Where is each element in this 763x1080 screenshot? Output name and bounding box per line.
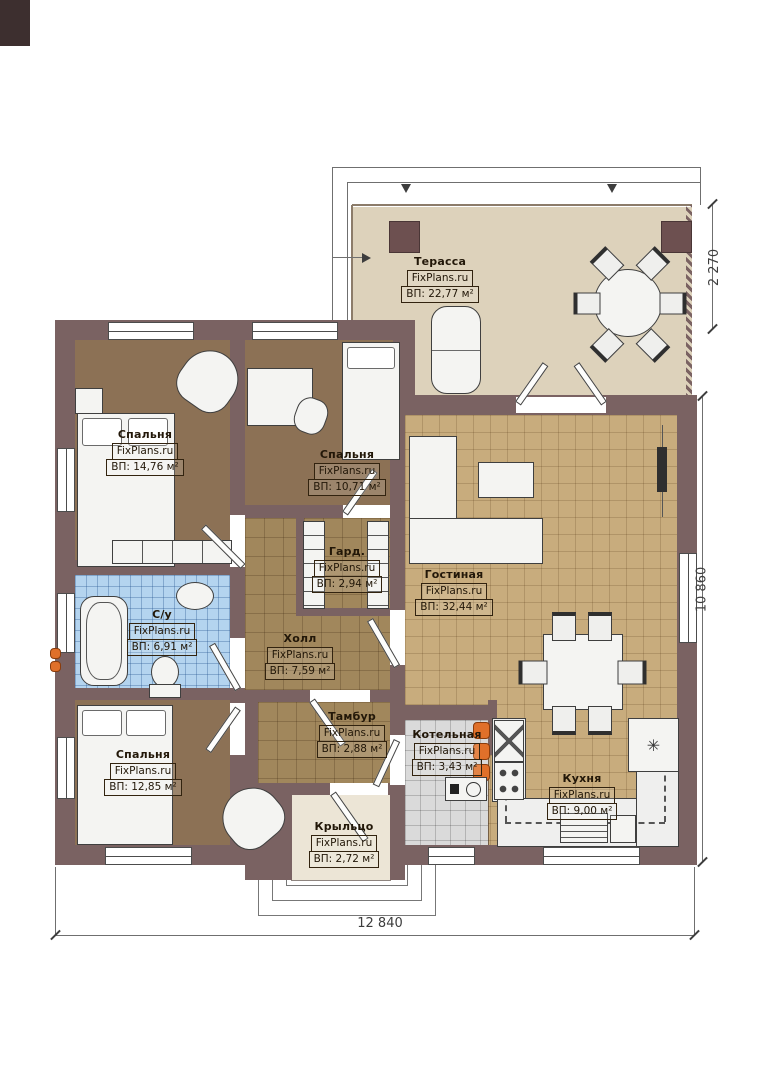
- window-bathroom-left: [57, 593, 75, 653]
- window-bedroom2-top: [252, 322, 338, 340]
- terrace-column: [661, 221, 692, 253]
- dim-label-terrace-depth: 2 270: [685, 260, 745, 275]
- wall-bedrooms-divider: [230, 320, 245, 845]
- dining-chair: [618, 661, 647, 685]
- window-bedroom1-top: [108, 322, 194, 340]
- terrace-chair: [660, 293, 687, 315]
- room-area: ВП: 22,77 м²: [401, 286, 479, 303]
- room-name: Спальня: [95, 428, 195, 441]
- dim-arrow-down: [401, 184, 411, 193]
- dim-line-house-width: [55, 935, 695, 936]
- coffee-table: [478, 462, 534, 498]
- dim-value: 2 270: [708, 249, 723, 286]
- fridge-icon: ✳: [647, 736, 660, 755]
- dim-label-house-depth: 10 860: [672, 582, 732, 597]
- dim-line-terrace-ptr: [332, 257, 364, 258]
- towel-radiator: [50, 661, 61, 672]
- room-label-bathroom: С/у FixPlans.ru ВП: 6,91 м²: [112, 608, 212, 656]
- room-label-hall: Холл FixPlans.ru ВП: 7,59 м²: [250, 632, 350, 680]
- terrace-column: [389, 221, 420, 253]
- brand-watermark: FixPlans.ru: [314, 560, 381, 577]
- page-corner-marker: [0, 0, 30, 46]
- bed-bedroom2: [342, 342, 400, 460]
- wardrobe-bedroom1: [112, 540, 232, 564]
- room-name: Гостиная: [404, 568, 504, 581]
- bathroom-sink: [176, 582, 214, 610]
- stove: [494, 762, 524, 800]
- brand-watermark: FixPlans.ru: [407, 270, 474, 287]
- washing-machine: [445, 777, 487, 801]
- dim-ext-bottom-right: [694, 867, 695, 935]
- window-kitchen-bottom: [543, 847, 640, 865]
- door-opening-terrace: [516, 397, 606, 413]
- terrace-edge-left: [351, 205, 353, 322]
- dim-line-top-1: [332, 167, 701, 168]
- brand-watermark: FixPlans.ru: [129, 623, 196, 640]
- room-area: ВП: 12,85 м²: [104, 779, 182, 796]
- terrace-chair: [574, 293, 601, 315]
- room-name: Гард.: [297, 545, 397, 558]
- tv: [657, 447, 667, 492]
- brand-watermark: FixPlans.ru: [549, 787, 616, 804]
- door-opening-hall-vestibule: [310, 690, 370, 702]
- room-area: ВП: 10,71 м²: [308, 479, 386, 496]
- floor-plan: ✳ Терасса FixPlans.ru ВП: 22,77 м² Спаль…: [0, 0, 763, 1080]
- terrace-edge-top: [352, 204, 692, 206]
- brand-watermark: FixPlans.ru: [311, 835, 378, 852]
- wall-boiler-top: [405, 705, 490, 720]
- room-area: ВП: 9,00 м²: [547, 803, 618, 820]
- dim-line-top-2: [347, 182, 700, 183]
- room-label-porch: Крыльцо FixPlans.ru ВП: 2,72 м²: [294, 820, 394, 868]
- room-name: Котельная: [397, 728, 497, 741]
- room-name: Тамбур: [302, 710, 402, 723]
- room-name: Спальня: [297, 448, 397, 461]
- room-name: Кухня: [532, 772, 632, 785]
- room-name: С/у: [112, 608, 212, 621]
- toilet-tank: [149, 684, 181, 698]
- dim-line-house-depth: [702, 397, 703, 863]
- room-name: Спальня: [93, 748, 193, 761]
- dim-label-house-width: 12 840: [330, 916, 430, 931]
- room-area: ВП: 2,88 м²: [317, 741, 388, 758]
- room-label-vestibule: Тамбур FixPlans.ru ВП: 2,88 м²: [302, 710, 402, 758]
- wall-vestibule-left: [245, 690, 258, 783]
- dining-chair: [588, 612, 612, 641]
- window-bedroom3-left: [57, 737, 75, 799]
- dining-table: [543, 634, 623, 710]
- brand-watermark: FixPlans.ru: [110, 763, 177, 780]
- room-label-bedroom3: Спальня FixPlans.ru ВП: 12,85 м²: [93, 748, 193, 796]
- room-area: ВП: 3,43 м²: [412, 759, 483, 776]
- kitchen-sink: [494, 720, 524, 762]
- room-area: ВП: 32,44 м²: [415, 599, 493, 616]
- sofa-horizontal: [409, 518, 543, 564]
- terrace-sofa: [431, 306, 481, 394]
- dim-arrow-down: [607, 184, 617, 193]
- wall-bath-bedroom3: [55, 688, 230, 700]
- room-label-wardrobe: Гард. FixPlans.ru ВП: 2,94 м²: [297, 545, 397, 593]
- dining-chair: [519, 661, 548, 685]
- room-area: ВП: 14,76 м²: [106, 459, 184, 476]
- nightstand-bedroom1: [75, 388, 103, 414]
- window-bedroom1-left: [57, 448, 75, 512]
- room-label-terrace: Терасса FixPlans.ru ВП: 22,77 м²: [388, 255, 492, 303]
- room-label-bedroom1: Спальня FixPlans.ru ВП: 14,76 м²: [95, 428, 195, 476]
- dim-ext-top-left-1: [332, 167, 333, 320]
- room-label-boiler: Котельная FixPlans.ru ВП: 3,43 м²: [397, 728, 497, 776]
- dim-arrow-right: [362, 253, 371, 263]
- brand-watermark: FixPlans.ru: [267, 647, 334, 664]
- room-name: Крыльцо: [294, 820, 394, 833]
- dim-ext-top-right: [700, 167, 701, 205]
- brand-watermark: FixPlans.ru: [112, 443, 179, 460]
- brand-watermark: FixPlans.ru: [314, 463, 381, 480]
- room-name: Терасса: [388, 255, 492, 268]
- dining-chair: [552, 706, 576, 735]
- brand-watermark: FixPlans.ru: [319, 725, 386, 742]
- room-name: Холл: [250, 632, 350, 645]
- fridge: ✳: [628, 718, 679, 772]
- dim-ext-bottom-left: [55, 867, 56, 935]
- wall-wardrobe-bottom: [296, 608, 398, 616]
- window-bedroom3-bottom: [105, 847, 192, 865]
- brand-watermark: FixPlans.ru: [421, 583, 488, 600]
- room-area: ВП: 7,59 м²: [265, 663, 336, 680]
- dining-chair: [552, 612, 576, 641]
- dining-chair: [588, 706, 612, 735]
- window-boiler-bottom: [428, 847, 475, 865]
- towel-radiator: [50, 648, 61, 659]
- room-label-bedroom2: Спальня FixPlans.ru ВП: 10,71 м²: [297, 448, 397, 496]
- brand-watermark: FixPlans.ru: [414, 743, 481, 760]
- room-area: ВП: 2,94 м²: [312, 576, 383, 593]
- dim-ext-top-left-2: [347, 182, 348, 320]
- dim-value: 10 860: [695, 567, 710, 613]
- room-label-living: Гостиная FixPlans.ru ВП: 32,44 м²: [404, 568, 504, 616]
- room-label-kitchen: Кухня FixPlans.ru ВП: 9,00 м²: [532, 772, 632, 820]
- room-area: ВП: 6,91 м²: [127, 639, 198, 656]
- room-area: ВП: 2,72 м²: [309, 851, 380, 868]
